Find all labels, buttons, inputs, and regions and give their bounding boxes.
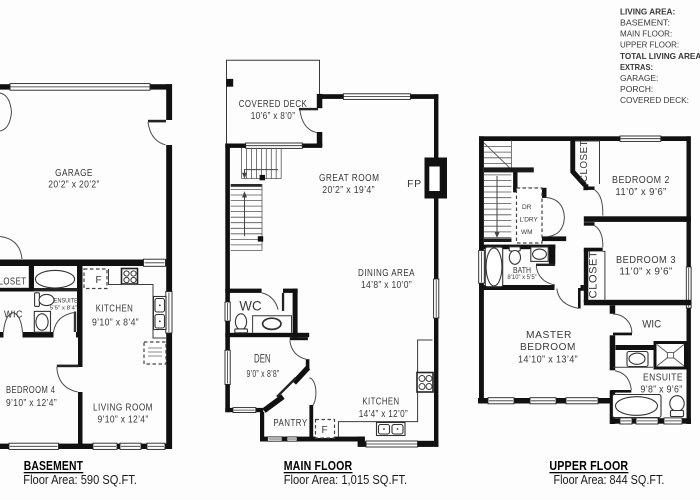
svg-text:9’10” x 12’4”: 9’10” x 12’4” (6, 397, 57, 409)
svg-text:L’DRY: L’DRY (520, 217, 539, 224)
svg-text:F: F (322, 425, 328, 436)
svg-text:5’5” x 8’4”: 5’5” x 8’4” (50, 305, 77, 311)
svg-text:CLOSET: CLOSET (579, 140, 590, 182)
svg-text:MASTER: MASTER (526, 329, 572, 341)
svg-text:GREAT ROOM: GREAT ROOM (319, 172, 380, 184)
svg-text:GARAGE: GARAGE (55, 167, 93, 179)
svg-text:BEDROOM 3: BEDROOM 3 (616, 254, 676, 266)
svg-text:PANTRY: PANTRY (273, 417, 307, 429)
svg-text:BATH: BATH (513, 266, 531, 275)
svg-text:11’0” x 9’6”: 11’0” x 9’6” (615, 186, 666, 198)
svg-text:ENSUITE: ENSUITE (54, 297, 78, 304)
svg-text:COVERED DECK: COVERED DECK (239, 98, 308, 110)
svg-text:WM: WM (521, 229, 533, 236)
svg-text:BEDROOM: BEDROOM (520, 341, 576, 353)
svg-text:WC: WC (239, 297, 261, 313)
svg-text:LIVING ROOM: LIVING ROOM (93, 402, 153, 414)
svg-text:Floor Area: 590 SQ.FT.: Floor Area: 590 SQ.FT. (23, 473, 137, 487)
svg-text:BASEMENT:: BASEMENT: (620, 18, 670, 27)
svg-text:CLOSET: CLOSET (0, 276, 27, 288)
svg-text:10’6” x 8’0”: 10’6” x 8’0” (251, 110, 296, 122)
svg-text:GARAGE:: GARAGE: (620, 74, 658, 83)
svg-text:F: F (96, 275, 102, 286)
svg-text:FP: FP (407, 178, 422, 190)
svg-text:8’10” x 5’5”: 8’10” x 5’5” (507, 275, 536, 281)
svg-text:LIVING AREA:: LIVING AREA: (620, 7, 675, 16)
svg-text:9’8” x 9’6”: 9’8” x 9’6” (641, 384, 683, 396)
svg-text:PORCH:: PORCH: (620, 85, 653, 94)
svg-text:BASEMENT: BASEMENT (24, 458, 83, 473)
svg-text:20’2” x 20’2”: 20’2” x 20’2” (48, 179, 99, 191)
svg-text:WIC: WIC (642, 319, 661, 331)
svg-text:Floor Area: 1,015 SQ.FT.: Floor Area: 1,015 SQ.FT. (284, 473, 407, 487)
svg-text:UPPER FLOOR: UPPER FLOOR (549, 458, 628, 473)
svg-text:BEDROOM 4: BEDROOM 4 (6, 384, 56, 396)
svg-text:KITCHEN: KITCHEN (96, 303, 134, 315)
svg-text:WIC: WIC (4, 309, 23, 321)
svg-text:COVERED DECK:: COVERED DECK: (620, 96, 689, 105)
svg-text:20’2” x 19’4”: 20’2” x 19’4” (322, 184, 375, 196)
svg-text:Floor Area: 844 SQ.FT.: Floor Area: 844 SQ.FT. (554, 473, 665, 487)
svg-text:KITCHEN: KITCHEN (362, 396, 399, 408)
svg-text:9’10” x 12’4”: 9’10” x 12’4” (98, 414, 149, 426)
svg-text:DR: DR (522, 204, 532, 211)
svg-text:14’8” x 10’0”: 14’8” x 10’0” (361, 279, 412, 291)
svg-text:9’0” x 8’8”: 9’0” x 8’8” (247, 368, 280, 380)
svg-text:EXTRAS:: EXTRAS: (620, 63, 653, 72)
svg-text:MAIN FLOOR: MAIN FLOOR (284, 458, 353, 473)
svg-text:TOTAL LIVING AREA:: TOTAL LIVING AREA: (620, 52, 700, 61)
svg-text:UPPER FLOOR:: UPPER FLOOR: (620, 41, 679, 50)
svg-text:11’0” x 9’6”: 11’0” x 9’6” (619, 266, 672, 278)
svg-text:BEDROOM 2: BEDROOM 2 (612, 174, 670, 186)
svg-text:ENSUITE: ENSUITE (643, 371, 683, 383)
svg-text:14’4” x 12’0”: 14’4” x 12’0” (359, 408, 408, 420)
svg-text:DINING AREA: DINING AREA (358, 267, 415, 279)
svg-text:DEN: DEN (254, 352, 271, 366)
svg-text:CLOSET: CLOSET (588, 251, 600, 299)
svg-text:9’10” x 8’4”: 9’10” x 8’4” (92, 317, 139, 329)
svg-text:MAIN FLOOR:: MAIN FLOOR: (620, 30, 672, 39)
svg-text:14’10” x 13’4”: 14’10” x 13’4” (518, 353, 578, 365)
